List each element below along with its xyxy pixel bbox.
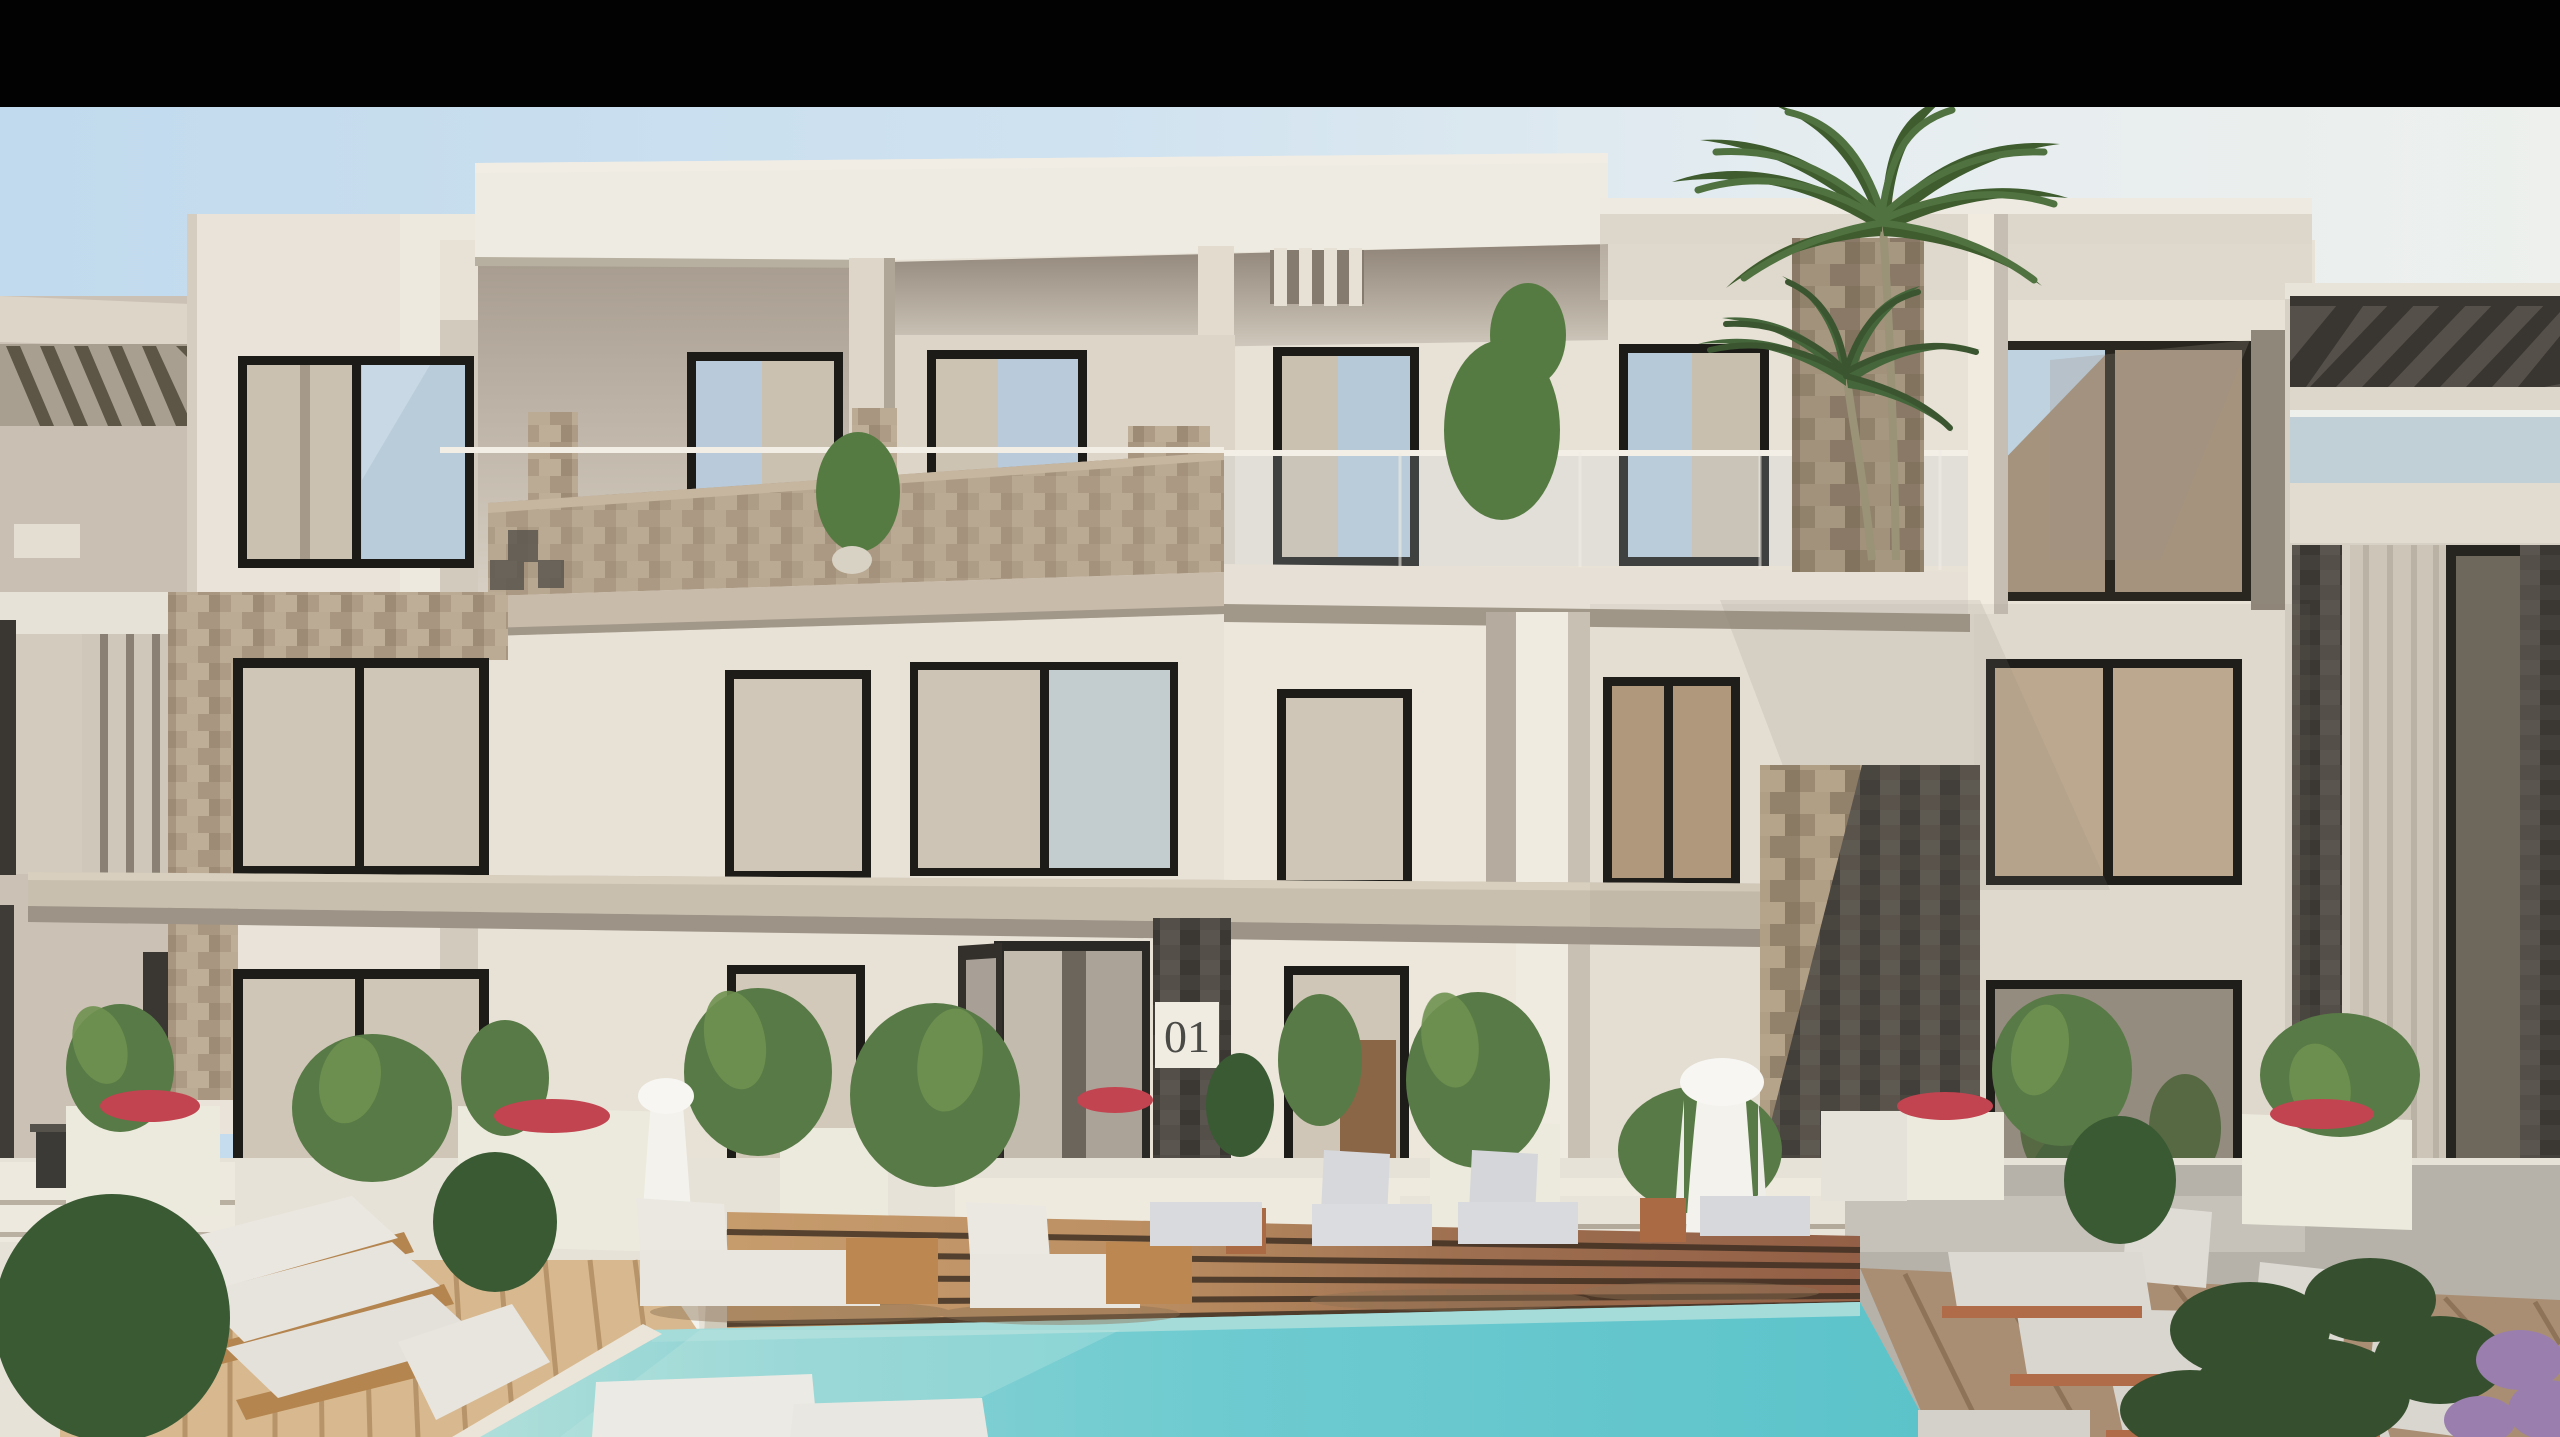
- svg-text:01: 01: [1164, 1011, 1210, 1062]
